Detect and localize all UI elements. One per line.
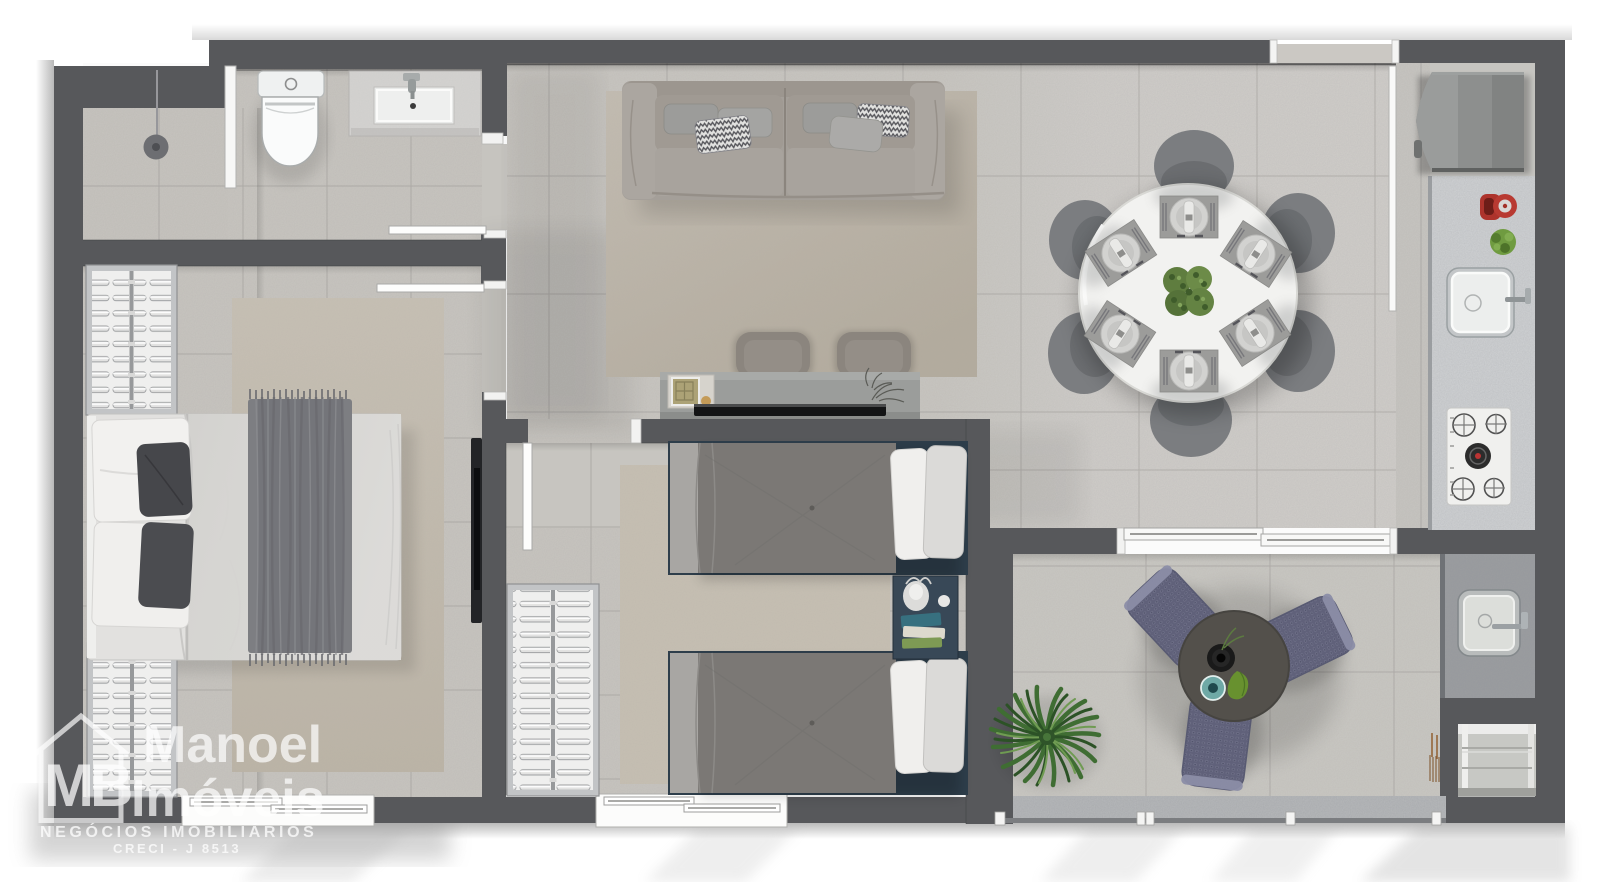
svg-text:CRECI - J 8513: CRECI - J 8513 (113, 841, 241, 856)
svg-text:MB: MB (44, 752, 131, 819)
svg-text:Manoel: Manoel (143, 716, 322, 774)
svg-text:Imóveis: Imóveis (131, 770, 325, 828)
svg-text:NEGÓCIOS IMOBILIÁRIOS: NEGÓCIOS IMOBILIÁRIOS (40, 822, 317, 841)
